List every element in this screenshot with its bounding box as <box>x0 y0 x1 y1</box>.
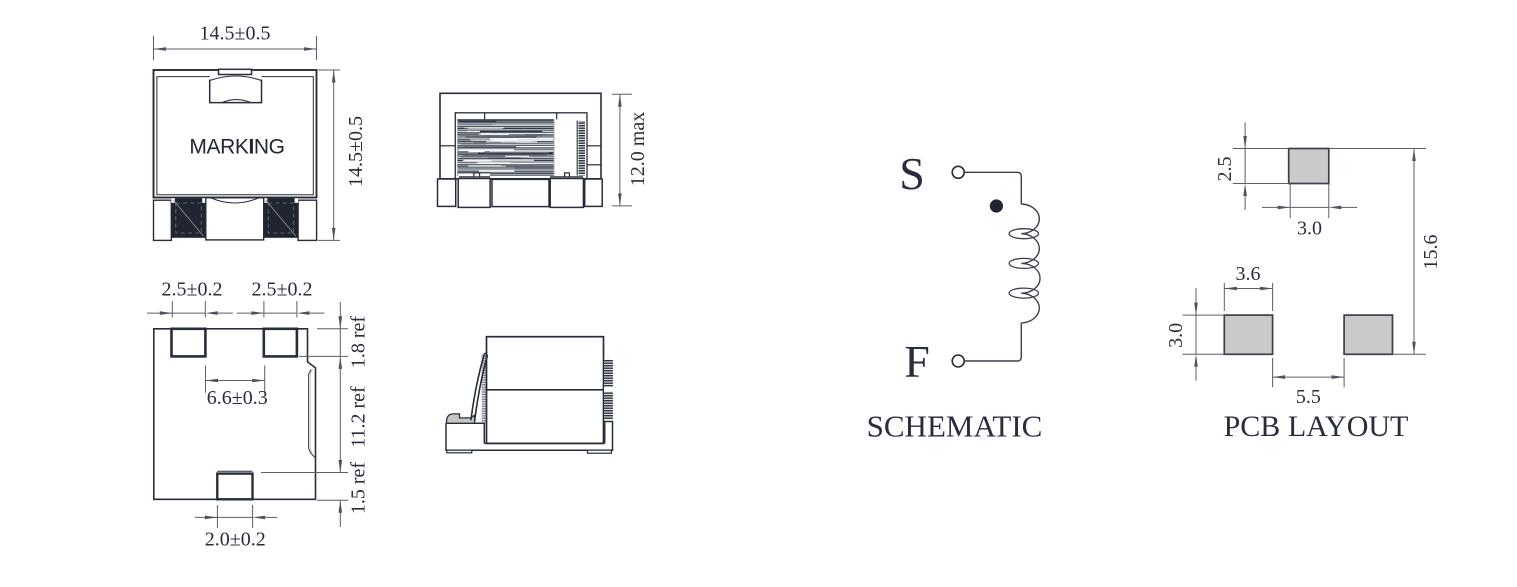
svg-text:2.5±0.2: 2.5±0.2 <box>252 278 313 300</box>
svg-text:3.0: 3.0 <box>1297 218 1322 240</box>
svg-text:1.8 ref: 1.8 ref <box>348 316 370 369</box>
svg-text:F: F <box>904 336 930 387</box>
svg-text:2.0±0.2: 2.0±0.2 <box>205 529 266 551</box>
svg-text:14.5±0.5: 14.5±0.5 <box>200 23 271 45</box>
svg-text:PCB LAYOUT: PCB LAYOUT <box>1224 410 1409 443</box>
svg-text:5.5: 5.5 <box>1296 386 1321 408</box>
svg-text:3.0: 3.0 <box>1165 323 1187 348</box>
svg-text:MARKING: MARKING <box>189 136 284 159</box>
svg-text:15.6: 15.6 <box>1420 235 1442 270</box>
svg-text:SCHEMATIC: SCHEMATIC <box>867 409 1043 444</box>
svg-text:3.6: 3.6 <box>1236 263 1261 285</box>
svg-text:2.5±0.2: 2.5±0.2 <box>162 278 223 300</box>
svg-text:11.2 ref: 11.2 ref <box>348 386 370 448</box>
svg-text:6.6±0.3: 6.6±0.3 <box>207 387 268 409</box>
svg-text:S: S <box>899 148 925 199</box>
svg-text:12.0 max: 12.0 max <box>627 112 649 186</box>
svg-text:14.5±0.5: 14.5±0.5 <box>345 116 367 187</box>
svg-text:1.5 ref: 1.5 ref <box>348 462 370 515</box>
svg-text:2.5: 2.5 <box>1214 157 1236 182</box>
